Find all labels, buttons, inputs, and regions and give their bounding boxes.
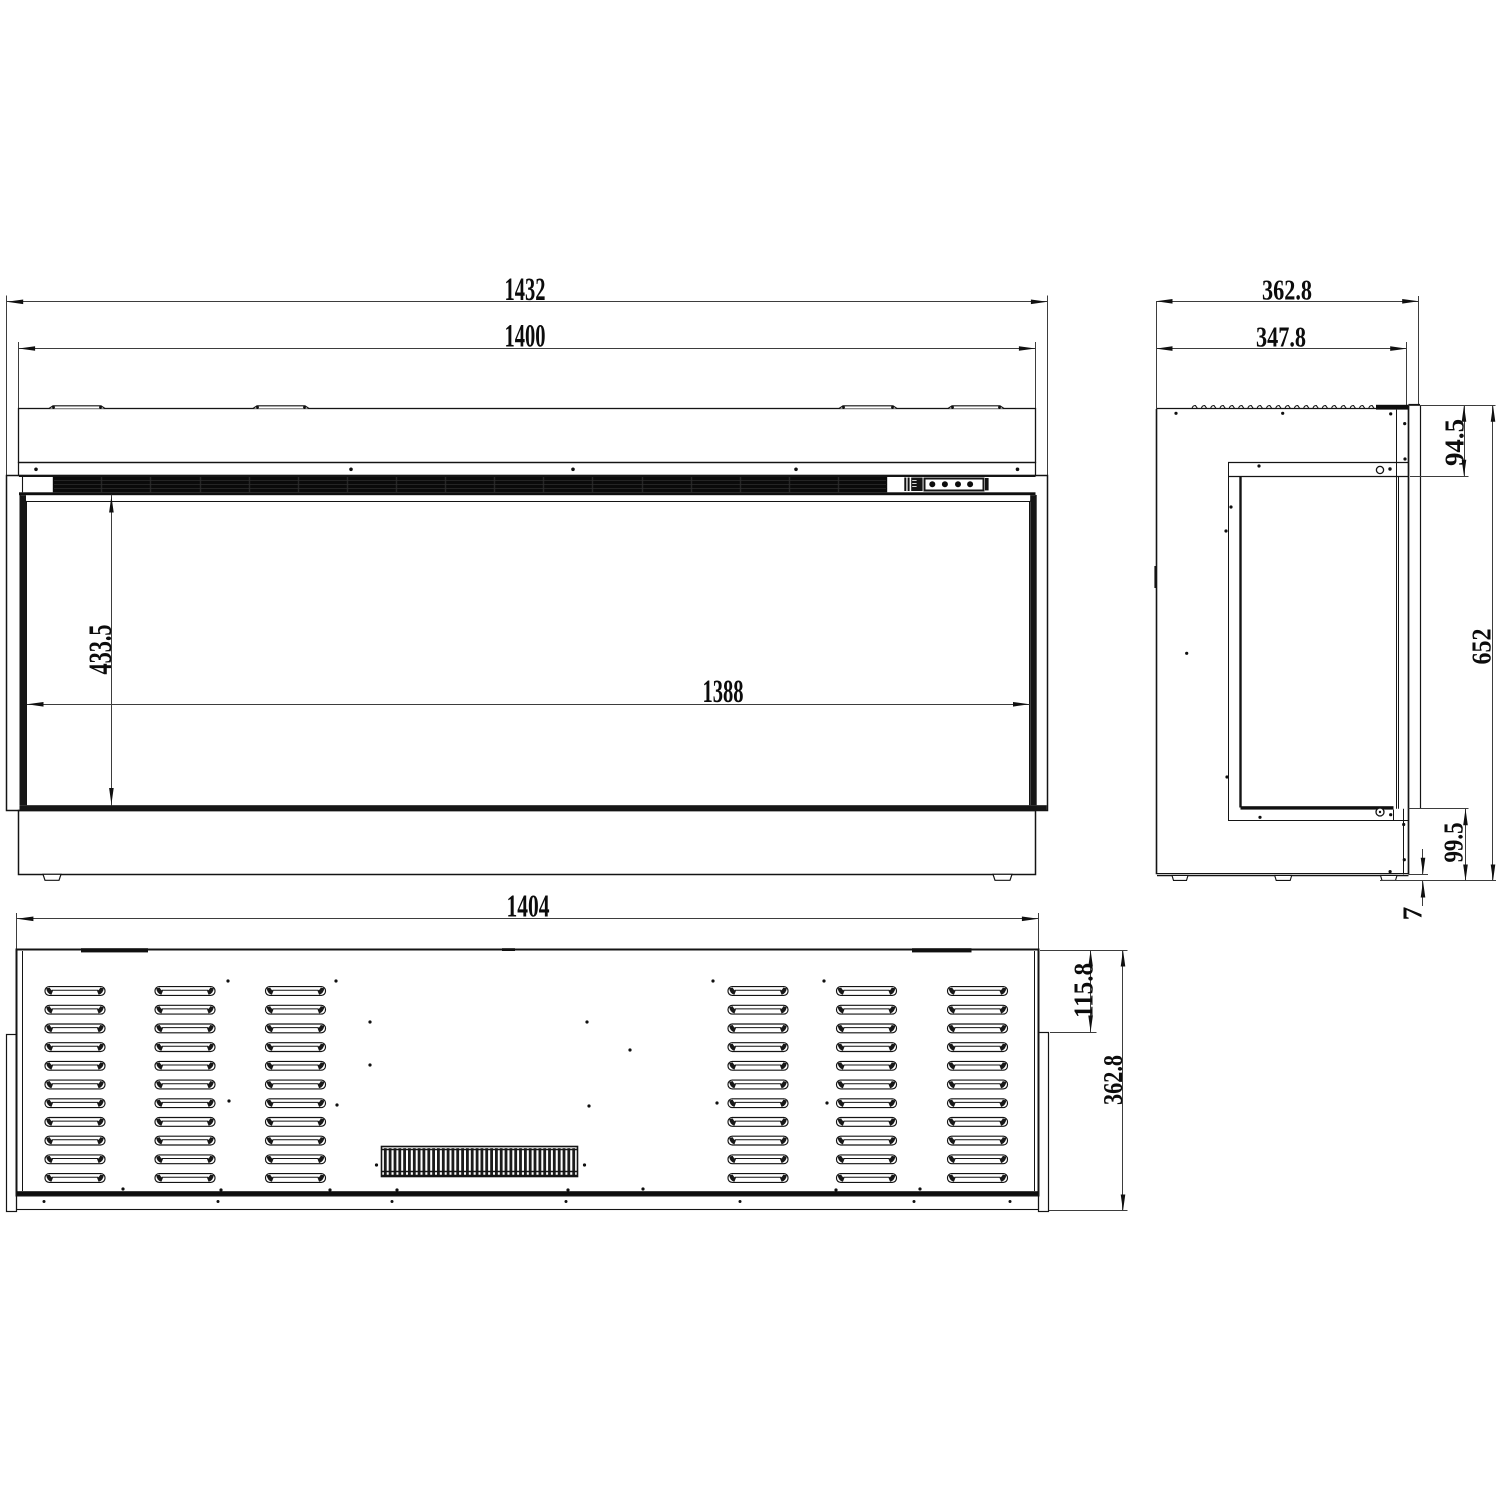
svg-text:1432: 1432 <box>505 272 546 308</box>
svg-text:433.5: 433.5 <box>83 625 119 675</box>
svg-text:362.8: 362.8 <box>1262 276 1312 307</box>
svg-text:115.8: 115.8 <box>1069 963 1099 1018</box>
svg-text:1400: 1400 <box>505 319 546 355</box>
svg-text:347.8: 347.8 <box>1256 323 1306 354</box>
svg-text:99.5: 99.5 <box>1439 823 1469 863</box>
svg-text:1404: 1404 <box>507 887 550 923</box>
svg-text:7: 7 <box>1398 907 1428 921</box>
svg-text:652: 652 <box>1467 629 1497 665</box>
svg-text:1388: 1388 <box>703 674 744 710</box>
svg-text:94.5: 94.5 <box>1440 419 1470 466</box>
svg-text:362.8: 362.8 <box>1098 1055 1128 1105</box>
